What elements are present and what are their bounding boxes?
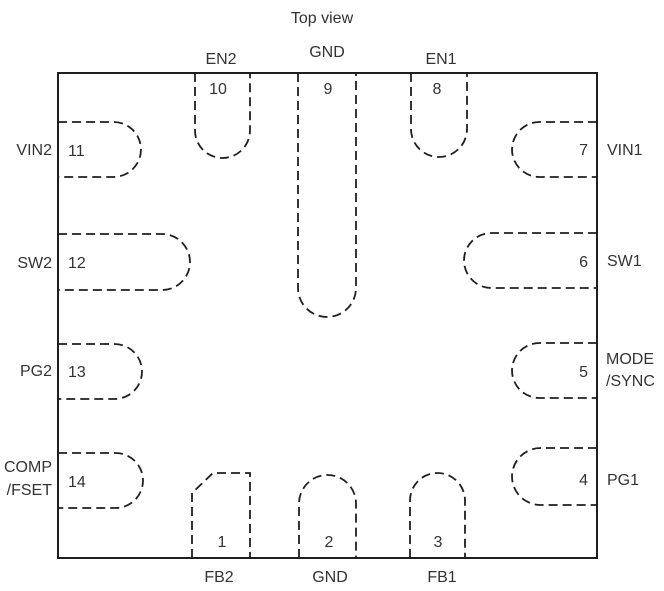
pin-8-label: EN1 (425, 51, 456, 68)
pin-11-number: 11 (68, 143, 85, 160)
pin-10: 10 EN2 (195, 51, 250, 158)
pin-7: 7 VIN1 (512, 122, 643, 177)
pin-5-label: MODE (606, 351, 654, 368)
pin-4-number: 4 (579, 472, 588, 489)
pin-5-number: 5 (579, 364, 588, 381)
pin-1-label: FB2 (204, 569, 233, 586)
pin-13: 13 PG2 (20, 344, 142, 399)
pin-9-pad (298, 73, 356, 317)
pin-12: 12 SW2 (17, 234, 190, 290)
pin-11: 11 VIN2 (16, 122, 141, 177)
pin-13-number: 13 (68, 364, 86, 381)
pin-14-label-line2: /FSET (7, 482, 53, 499)
pin-9-label: GND (309, 44, 345, 61)
pin-11-label: VIN2 (16, 142, 52, 159)
pinout-diagram: Top view 1 FB2 2 GND 3 FB1 4 PG1 5 MO (0, 0, 664, 591)
pin-12-number: 12 (68, 255, 86, 272)
pin-1: 1 FB2 (192, 473, 250, 586)
pin-9-number: 9 (324, 81, 333, 98)
pin-2: 2 GND (299, 475, 356, 586)
diagram-title: Top view (291, 10, 354, 27)
pin-7-label: VIN1 (607, 142, 643, 159)
pin-6: 6 SW1 (464, 233, 642, 288)
pin-6-label: SW1 (607, 253, 642, 270)
pin-5: 5 MODE /SYNC (512, 343, 655, 398)
pin-3-label: FB1 (427, 569, 456, 586)
pin-1-number: 1 (218, 534, 227, 551)
pin-14-label: COMP (4, 459, 52, 476)
pin-7-number: 7 (579, 142, 588, 159)
pin-3: 3 FB1 (410, 473, 465, 586)
pin-4-label: PG1 (607, 472, 639, 489)
pin-2-label: GND (312, 569, 348, 586)
pin-10-number: 10 (209, 81, 227, 98)
pin-2-number: 2 (325, 534, 334, 551)
pin-5-label-line2: /SYNC (606, 373, 655, 390)
pin-9: 9 GND (298, 44, 356, 317)
pin-13-label: PG2 (20, 363, 52, 380)
package-outline (58, 73, 597, 558)
pin-12-label: SW2 (17, 255, 52, 272)
pin-8: 8 EN1 (411, 51, 467, 157)
pin-8-number: 8 (433, 81, 442, 98)
pin-4: 4 PG1 (512, 448, 639, 505)
pin-6-number: 6 (579, 254, 588, 271)
pin-3-number: 3 (434, 534, 443, 551)
pin-10-label: EN2 (205, 51, 236, 68)
pinout-figure: Top view 1 FB2 2 GND 3 FB1 4 PG1 5 MO (0, 0, 664, 591)
pin-14: 14 COMP /FSET (4, 453, 143, 508)
pin-6-pad (464, 233, 597, 288)
pin-14-number: 14 (68, 474, 86, 491)
